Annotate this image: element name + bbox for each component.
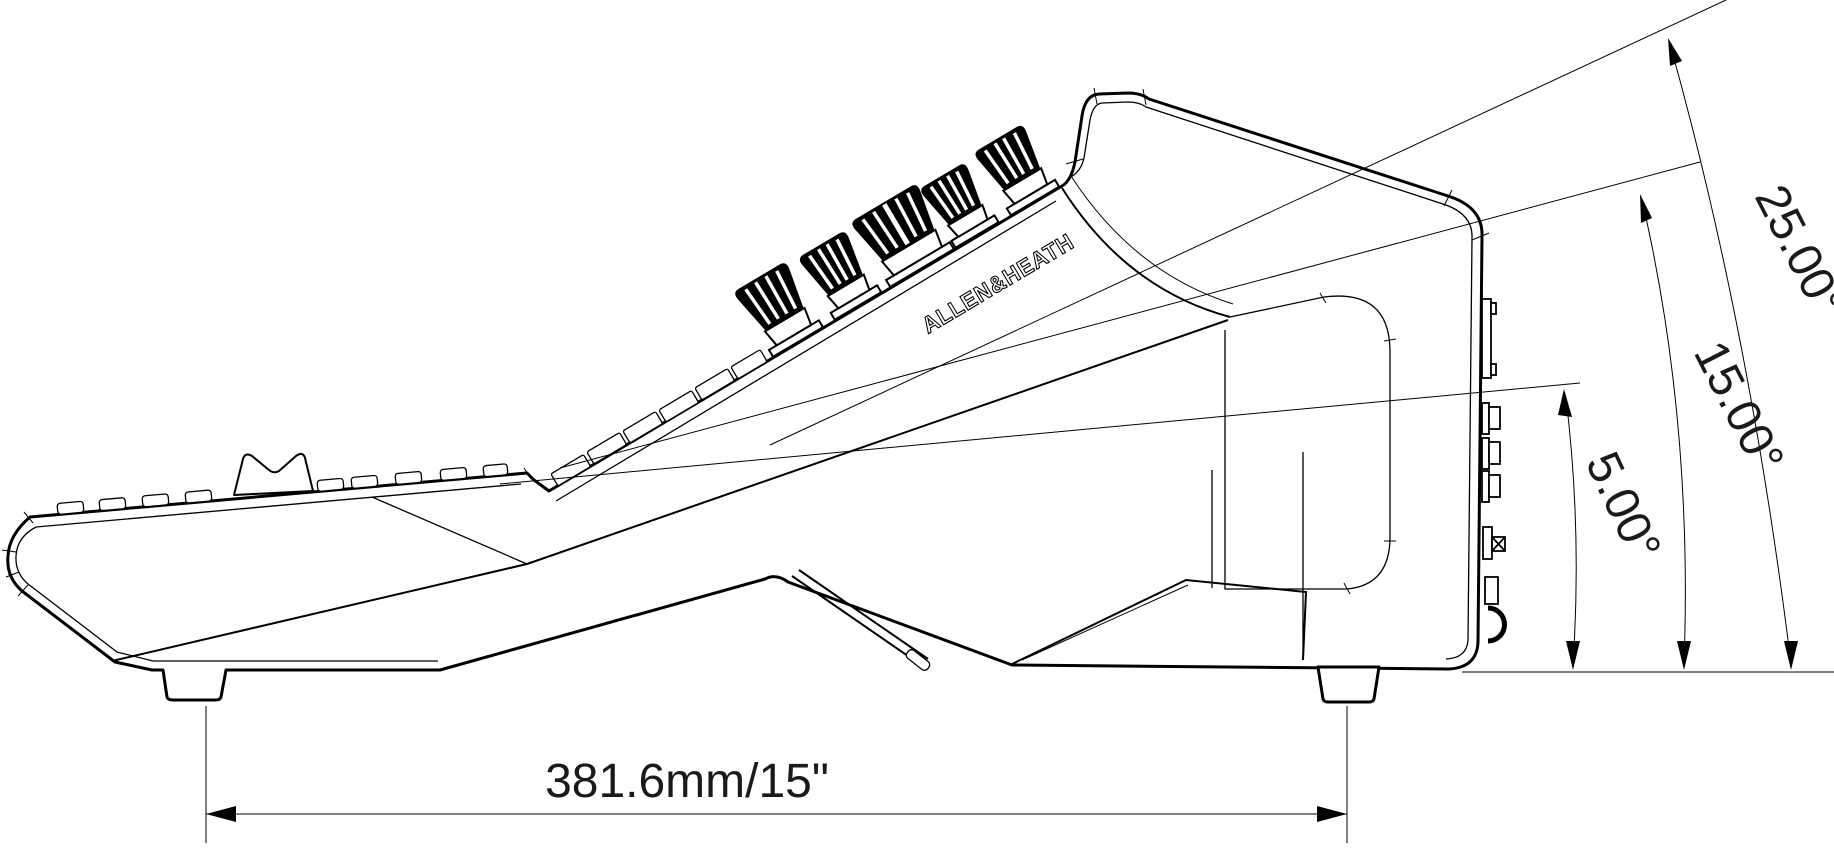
technical-drawing-canvas: ALLEN&HEATH 25.00°: [0, 0, 1834, 849]
vent-slot: [1482, 299, 1491, 378]
arrowhead: [1784, 641, 1798, 670]
arc-5deg: [1566, 398, 1576, 664]
arrowhead: [1677, 641, 1691, 670]
button-cap: [185, 490, 212, 503]
angle-dimension-arcs: [1558, 38, 1798, 670]
angle-label-5: 5.00°: [1575, 444, 1671, 568]
vent-nub: [1491, 364, 1496, 375]
button-cap: [351, 475, 378, 488]
xlr-connector-icon: [1489, 407, 1500, 429]
arrowhead: [1317, 806, 1347, 822]
xlr-connector-icon: [1482, 471, 1489, 502]
xlr-connector-icon: [1482, 438, 1489, 469]
xlr-connector-icon: [1489, 442, 1500, 464]
button-cap: [440, 467, 467, 480]
width-dimension-label: 381.6mm/15": [545, 755, 829, 808]
button-cap: [483, 464, 508, 477]
rear-connectors: [1482, 299, 1505, 641]
arrowhead: [1566, 641, 1580, 670]
power-inlet: [1483, 527, 1492, 559]
console-side-view-drawing: ALLEN&HEATH 25.00°: [0, 0, 1834, 849]
button-cap: [395, 471, 422, 484]
cable-bracket: [1485, 577, 1498, 604]
console-silhouette: [8, 93, 1482, 700]
arrowhead: [1640, 194, 1652, 223]
cable-hook-icon: [1488, 608, 1505, 641]
vent-nub: [1491, 303, 1496, 314]
button-cap: [99, 498, 126, 511]
console-outline: [2, 88, 1489, 702]
arc-15deg: [1642, 200, 1685, 664]
button-cap: [57, 501, 84, 514]
xlr-connector-icon: [1482, 403, 1489, 434]
xlr-connector-icon: [1489, 475, 1500, 497]
rear-foot: [1318, 667, 1379, 702]
width-dimension: 381.6mm/15": [206, 706, 1347, 843]
angle-label-25: 25.00°: [1744, 177, 1834, 325]
fader-knob: [234, 454, 313, 495]
arrowhead: [206, 806, 236, 822]
arrowhead: [1668, 38, 1682, 66]
angle-label-15: 15.00°: [1683, 333, 1793, 481]
button-cap: [142, 494, 169, 507]
arrowhead: [1558, 389, 1572, 417]
button-cap: [317, 478, 344, 491]
